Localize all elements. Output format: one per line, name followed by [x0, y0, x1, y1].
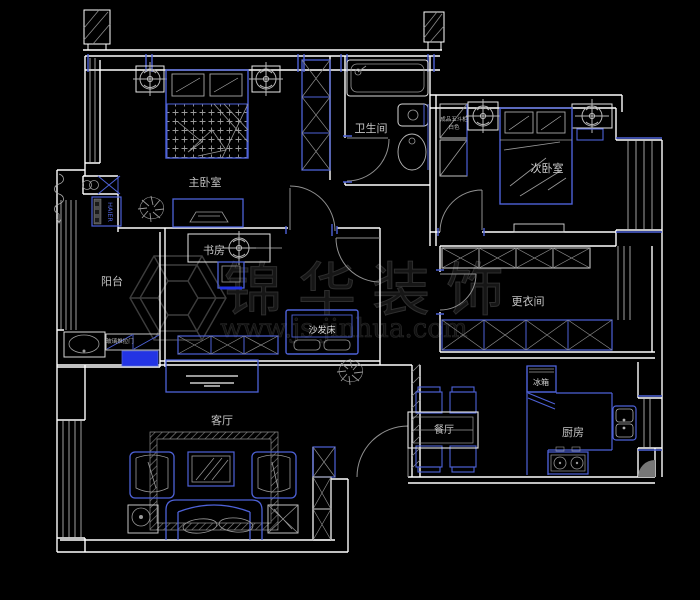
appliance-brand-label: HAIER [106, 202, 114, 222]
sliding-door-note: 玻璃推拉门 [106, 337, 134, 345]
drain-pipe-icon [55, 174, 64, 223]
sofa-bed-label: 沙发床 [308, 324, 335, 336]
appliance: HAIER [92, 197, 121, 226]
room-label-living: 客厅 [211, 413, 233, 427]
laundry-box [83, 176, 121, 194]
plant-icon [337, 359, 363, 385]
washbasin [398, 104, 428, 170]
balcony-basin [64, 332, 105, 357]
sliding-door: 玻璃推拉门 [106, 334, 160, 366]
floor-plan-canvas: 锦华装饰 www.js-jinhua.com [0, 0, 700, 600]
watermark: 锦华装饰 www.js-jinhua.com [220, 256, 520, 344]
room-bathroom: 卫生间 [347, 60, 428, 170]
room-master-bedroom: 主卧室 [133, 60, 330, 227]
room-second-bedroom: 成品五斗柜 白色 次卧室 [440, 99, 612, 232]
ceiling-light-icon [466, 99, 500, 133]
watermark-url: www.js-jinhua.com [220, 314, 467, 344]
toilet [398, 134, 426, 170]
cabinet-note-line1: 成品五斗柜 [440, 115, 468, 123]
cabinet-note-line2: 白色 [448, 123, 460, 131]
drawer-cabinet: 成品五斗柜 白色 [440, 104, 468, 176]
hexagon-ornament [130, 256, 226, 340]
room-living: 客厅 [128, 360, 298, 540]
carpet [150, 432, 278, 530]
bench [577, 129, 603, 140]
room-dining: 餐厅 [408, 387, 478, 472]
room-label-second-bedroom: 次卧室 [531, 161, 564, 175]
room-label-kitchen: 厨房 [562, 426, 584, 439]
room-label-dining: 餐厅 [434, 423, 454, 436]
dresser [173, 199, 243, 227]
fridge-label: 冰箱 [533, 377, 549, 387]
room-label-bathroom: 卫生间 [355, 121, 388, 135]
bathtub [347, 60, 428, 96]
floor-plan-drawing: 锦华装饰 www.js-jinhua.com [0, 0, 700, 600]
room-label-balcony: 阳台 [101, 274, 123, 288]
room-label-study: 书房 [203, 244, 225, 257]
plant-icon [138, 196, 164, 222]
wardrobe [302, 60, 330, 170]
ceiling-light-icon [249, 62, 283, 96]
room-label-master-bedroom: 主卧室 [189, 175, 222, 189]
room-kitchen: 冰箱 厨房 [527, 366, 655, 477]
double-bed [500, 108, 572, 204]
tv-cabinet [514, 224, 564, 232]
door-threshold [122, 351, 158, 366]
fridge: 冰箱 [527, 366, 556, 409]
ceiling-light-icon [133, 62, 167, 96]
room-label-dressing: 更衣间 [512, 294, 545, 308]
room-balcony: HAIER 玻璃推拉门 阳台 [55, 174, 161, 366]
coffee-table [188, 452, 234, 486]
corner-fillet [638, 460, 655, 477]
stove [548, 447, 588, 474]
double-bed [166, 70, 248, 158]
kitchen-sink [613, 406, 636, 440]
sofa [166, 500, 262, 540]
